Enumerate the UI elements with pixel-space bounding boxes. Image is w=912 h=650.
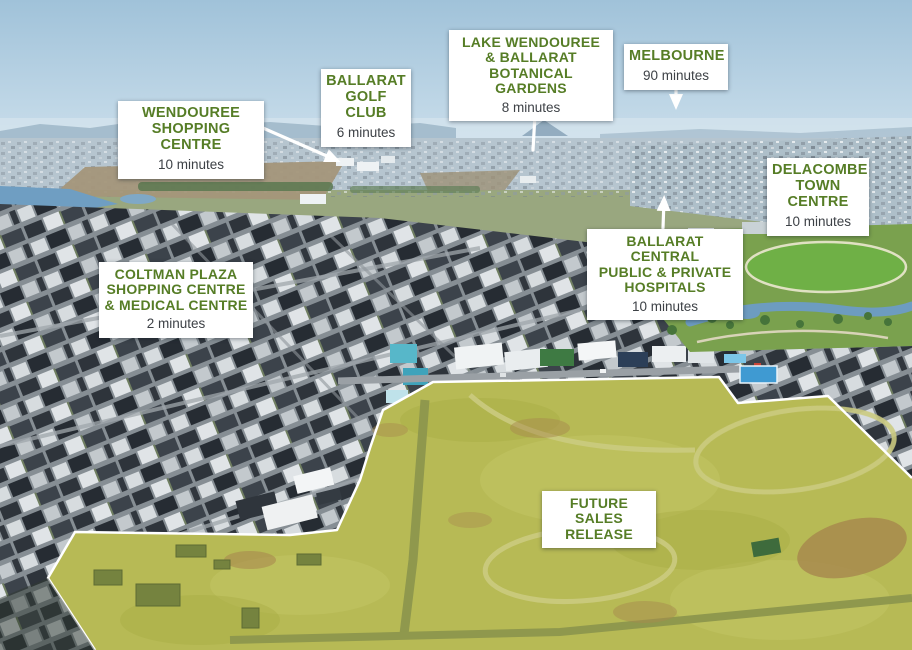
label-minutes: 8 minutes bbox=[454, 101, 608, 116]
label-minutes: 90 minutes bbox=[629, 69, 723, 84]
label-title: BALLARAT CENTRAL PUBLIC & PRIVATE HOSPIT… bbox=[592, 234, 738, 296]
label-minutes: 10 minutes bbox=[772, 215, 864, 230]
pond bbox=[120, 194, 156, 204]
label-title: FUTURE SALES RELEASE bbox=[547, 496, 651, 542]
aerial-location-map: WENDOUREE SHOPPING CENTRE 10 minutes BAL… bbox=[0, 0, 912, 650]
label-title: DELACOMBE TOWN CENTRE bbox=[772, 163, 864, 211]
arrow-ballarat-hospitals bbox=[663, 200, 664, 228]
label-title: BALLARAT GOLF CLUB bbox=[326, 74, 406, 122]
label-title: COLTMAN PLAZA SHOPPING CENTRE & MEDICAL … bbox=[104, 267, 248, 313]
pool bbox=[724, 354, 746, 363]
label-minutes: 10 minutes bbox=[123, 158, 259, 173]
label-title: WENDOUREE SHOPPING CENTRE bbox=[123, 106, 259, 154]
label-lake-wendouree-botanical-gardens: LAKE WENDOUREE & BALLARAT BOTANICAL GARD… bbox=[449, 30, 613, 121]
label-title: LAKE WENDOUREE & BALLARAT BOTANICAL GARD… bbox=[454, 35, 608, 97]
label-delacombe-town-centre: DELACOMBE TOWN CENTRE 10 minutes bbox=[767, 158, 869, 236]
label-coltman-plaza: COLTMAN PLAZA SHOPPING CENTRE & MEDICAL … bbox=[99, 262, 253, 338]
label-ballarat-golf-club: BALLARAT GOLF CLUB 6 minutes bbox=[321, 69, 411, 147]
label-minutes: 10 minutes bbox=[592, 300, 738, 315]
label-title: MELBOURNE bbox=[629, 49, 723, 65]
treeline bbox=[138, 182, 333, 191]
label-ballarat-central-hospitals: BALLARAT CENTRAL PUBLIC & PRIVATE HOSPIT… bbox=[587, 229, 743, 320]
treeline-2 bbox=[350, 186, 480, 193]
label-wendouree-shopping-centre: WENDOUREE SHOPPING CENTRE 10 minutes bbox=[118, 101, 264, 179]
blue-building bbox=[740, 366, 777, 383]
label-future-sales-release: FUTURE SALES RELEASE bbox=[542, 491, 656, 548]
label-minutes: 2 minutes bbox=[104, 317, 248, 332]
label-melbourne: MELBOURNE 90 minutes bbox=[624, 44, 728, 90]
label-minutes: 6 minutes bbox=[326, 126, 406, 141]
sports-oval bbox=[746, 242, 906, 292]
